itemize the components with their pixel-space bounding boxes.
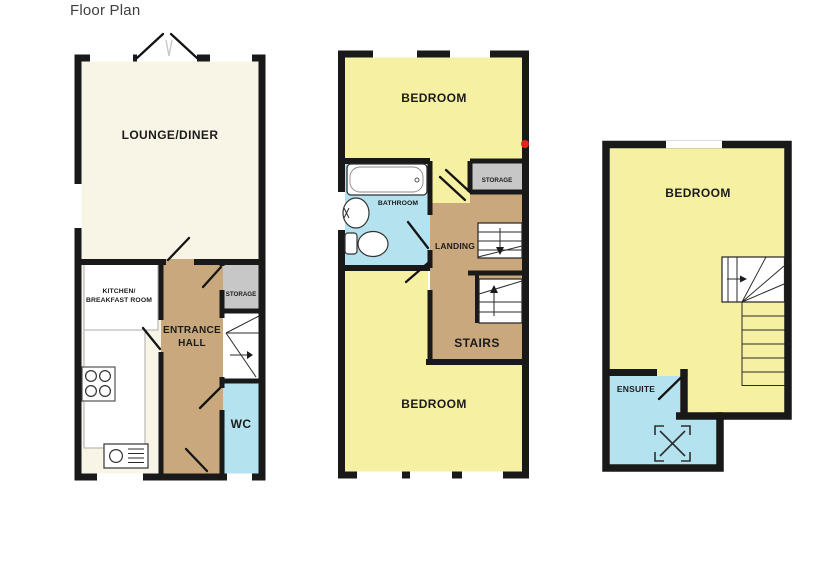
window [90,55,133,62]
ff-stairs-down-icon [479,279,522,323]
first-floor-plan: BEDROOM BATHROOM STORAGE LANDING STAIRS … [338,51,529,479]
ff-front-bedroom-room [345,57,526,161]
floor-plan-page: Floor Plan [0,0,839,582]
entrance-hall-room [161,259,223,474]
washer-icon [104,444,148,468]
lounge-diner-label: LOUNGE/DINER [122,128,219,142]
wc-label: WC [231,417,252,431]
window [373,51,417,58]
window [97,474,143,481]
window [227,474,252,481]
red-marker-dot [521,140,529,148]
sink-icon [343,198,369,228]
french-door-left [137,34,163,58]
ff-front-bedroom-label: BEDROOM [401,91,466,105]
entrance-hall-label-line1: ENTRANCE [163,325,221,336]
ff-storage-approach [430,161,470,203]
ground-floor-plan: LOUNGE/DINER KITCHEN/ BREAKFAST ROOM ENT… [75,34,263,481]
window [666,141,722,148]
gf-storage-label: STORAGE [226,291,256,298]
landing-label: LANDING [435,241,475,251]
door-opening [137,55,197,62]
sf-bedroom-label: BEDROOM [665,186,730,200]
lounge-diner-room [81,61,259,259]
ff-stairs-up-icon [478,223,522,258]
toilet-icon [345,232,388,257]
window [210,55,252,62]
ff-storage-label: STORAGE [482,177,512,184]
window [75,184,82,228]
bathroom-label: BATHROOM [378,200,419,207]
ff-back-bedroom-room [345,268,428,472]
gf-stairwell-area [223,313,259,379]
window [462,472,503,479]
floor-plan-drawing: LOUNGE/DINER KITCHEN/ BREAKFAST ROOM ENT… [0,0,839,582]
window [357,472,402,479]
window [450,51,490,58]
ensuite-label: ENSUITE [617,384,655,394]
french-door-right [171,34,197,58]
kitchen-label-line2: BREAKFAST ROOM [86,297,152,304]
ff-back-bedroom-label: BEDROOM [401,397,466,411]
hob-icon [82,367,115,401]
stairs-label: STAIRS [454,336,500,350]
window [410,472,452,479]
entrance-hall-label-line2: HALL [178,338,206,349]
gf-storage-room [223,259,259,313]
ff-back-bedroom-room-right [428,362,522,472]
kitchen-label-line1: KITCHEN/ [103,288,136,295]
second-floor-plan: BEDROOM ENSUITE [603,141,789,468]
bath-icon [347,164,427,195]
